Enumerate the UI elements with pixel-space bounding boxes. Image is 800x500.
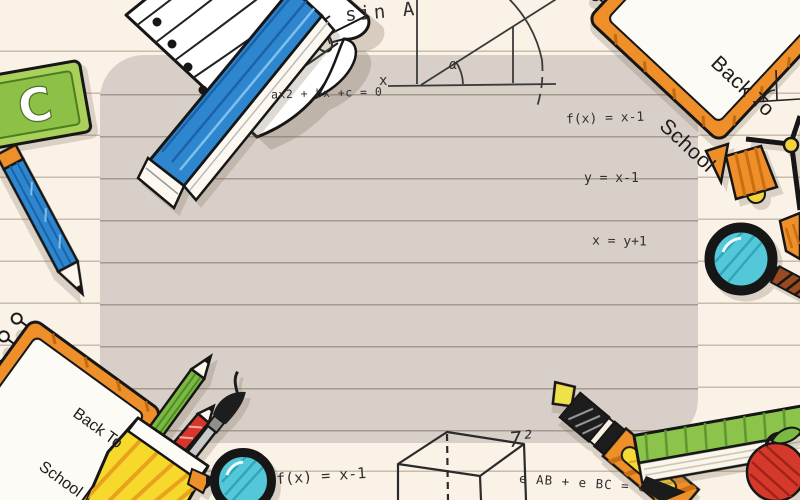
segment-equation-text: e AB + e BC = e AB xyxy=(519,471,673,497)
magnifier-left-doodle xyxy=(215,450,272,500)
angle-label: α xyxy=(449,57,457,73)
apple-doodle xyxy=(747,428,800,500)
equation-line: f(x) = x-1 xyxy=(275,462,367,490)
orange-wedge-doodle xyxy=(780,213,800,259)
seven-squared-text: 7² xyxy=(508,426,535,452)
blue-pencil-doodle xyxy=(0,145,94,302)
magnifier-right-doodle xyxy=(710,226,800,308)
apple-leaf xyxy=(772,428,800,444)
apple-stem xyxy=(766,434,783,447)
orange-pencil-tip xyxy=(188,469,210,493)
sin-a-text: sin A xyxy=(344,0,418,26)
equations-bottom-center: f(x) = x-1 y = x-1 x = y+1 xyxy=(276,421,366,500)
letter-card-doodle: C xyxy=(0,60,92,149)
x-axis-label: x xyxy=(379,73,387,89)
magnifier-handle xyxy=(764,262,800,307)
back-to-school-background: 3X2+ f(x) = x-1 y = x-1 x = y+1 e AB + e… xyxy=(0,0,800,500)
quadratic-equation-text: ax2 + bx +c = 0 xyxy=(271,85,383,102)
cubic-term-text: 3X2+ xyxy=(593,1,641,28)
equation-line: x = y+1 xyxy=(592,232,647,253)
notebook-text-line: Back To xyxy=(39,382,157,475)
letter-card-text: C xyxy=(14,76,57,135)
